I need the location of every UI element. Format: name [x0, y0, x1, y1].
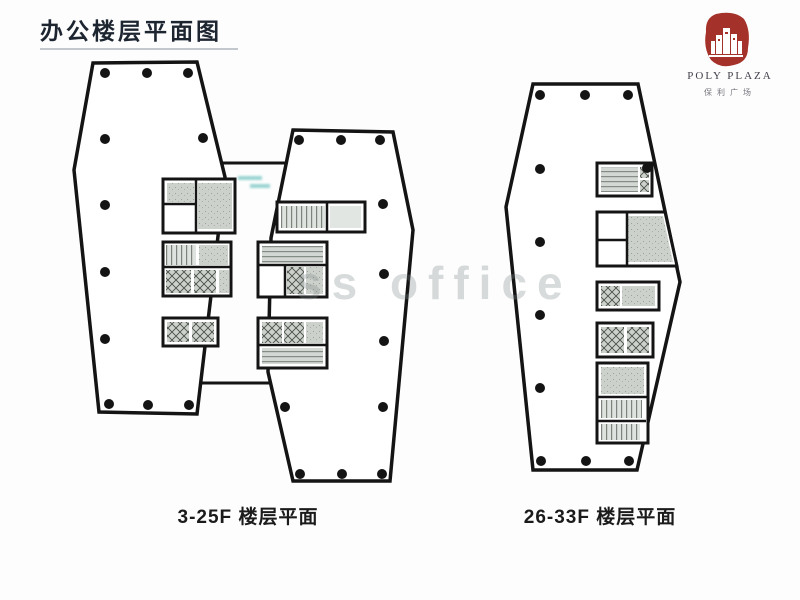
core-b3-right — [258, 318, 327, 368]
plan-26-33f — [506, 84, 680, 470]
core-c5 — [597, 363, 648, 443]
plan-3-25f — [74, 62, 413, 481]
core-b1-right — [277, 202, 365, 232]
plan-label-3-25f: 3-25F 楼层平面 — [118, 502, 378, 529]
tiny-teal-annotation — [238, 176, 262, 180]
plan-label-26-33f: 26-33F 楼层平面 — [470, 502, 730, 529]
core-b2-right — [258, 242, 327, 297]
plan-26-33f-outline — [506, 84, 680, 470]
core-b1-left — [163, 179, 235, 233]
core-c2 — [597, 212, 677, 266]
core-b3-left — [163, 318, 218, 346]
core-b2-left — [163, 242, 231, 296]
plan-3-25f-outline — [74, 62, 413, 481]
tiny-teal-annotation — [250, 184, 270, 188]
floor-plan-page: 办公楼层平面图 POLY PLAZA 保利广场 — [0, 0, 800, 600]
core-c4 — [597, 323, 653, 357]
core-c3 — [597, 282, 659, 310]
